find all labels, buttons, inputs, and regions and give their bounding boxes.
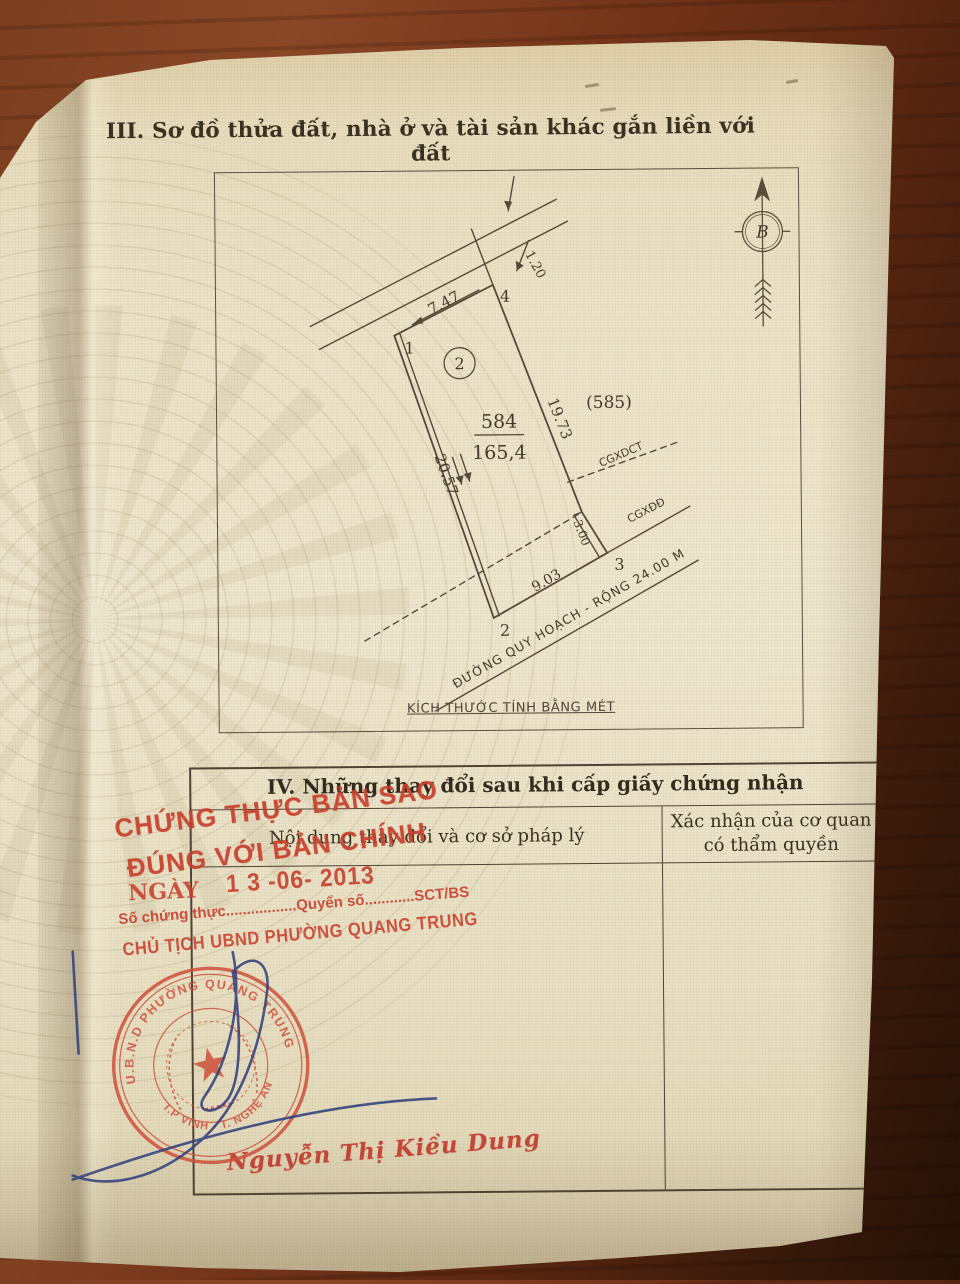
adjacent-plot-number: (585) <box>586 393 632 413</box>
plot-diagram-box: 7.47 1.20 20.57 19.73 3.00 9.03 1 4 2 3 … <box>214 167 804 733</box>
dim-bottom-edge: 9.03 <box>529 566 564 595</box>
dim-setback-strip: 3.00 <box>570 518 593 548</box>
handwritten-signature <box>43 930 475 1214</box>
plot-number: 584 <box>481 411 517 433</box>
vertex-3-label: 3 <box>614 555 624 574</box>
certificate-paper: III. Sơ đồ thửa đất, nhà ở và tài sản kh… <box>0 0 960 1280</box>
vertex-2-label: 2 <box>500 621 510 640</box>
vertex-1-label: 1 <box>404 339 414 358</box>
house-number: 2 <box>454 354 464 373</box>
north-arrow-icon: B <box>734 176 791 326</box>
plot-diagram: 7.47 1.20 20.57 19.73 3.00 9.03 1 4 2 3 … <box>215 168 803 713</box>
left-edge-arrowhead-icon <box>464 472 472 481</box>
section-iii-title: III. Sơ đồ thửa đất, nhà ở và tài sản kh… <box>105 114 755 170</box>
col-header-confirmation-line1: Xác nhận của cơ quan <box>671 808 872 834</box>
down-arrowhead-icon <box>504 201 512 211</box>
confirmation-cell-empty <box>663 861 883 1190</box>
dim-left-edge: 20.57 <box>431 451 462 497</box>
col-header-confirmation: Xác nhận của cơ quan có thẩm quyền <box>662 805 879 863</box>
planned-road-label: ĐƯỜNG QUY HOẠCH - RỘNG 24.00 M <box>450 545 688 691</box>
dim-right-edge: 19.73 <box>543 395 575 442</box>
dim-road-offset: 1.20 <box>521 249 548 282</box>
vertex-4-label: 4 <box>500 287 510 306</box>
plot-area: 165,4 <box>472 442 527 464</box>
top-edge-arrowhead-icon <box>412 316 423 324</box>
photo-of-land-certificate: { "page": { "section3_title": "III. Sơ đ… <box>0 0 960 1280</box>
boundary-cgxdct-label: CGXDCT <box>597 439 645 470</box>
col-header-confirmation-line2: có thẩm quyền <box>704 833 839 858</box>
boundary-cgxdd-label: CGXĐĐ <box>625 495 667 525</box>
date-stamp-label: NGÀY <box>128 877 200 906</box>
north-letter: B <box>755 222 769 242</box>
